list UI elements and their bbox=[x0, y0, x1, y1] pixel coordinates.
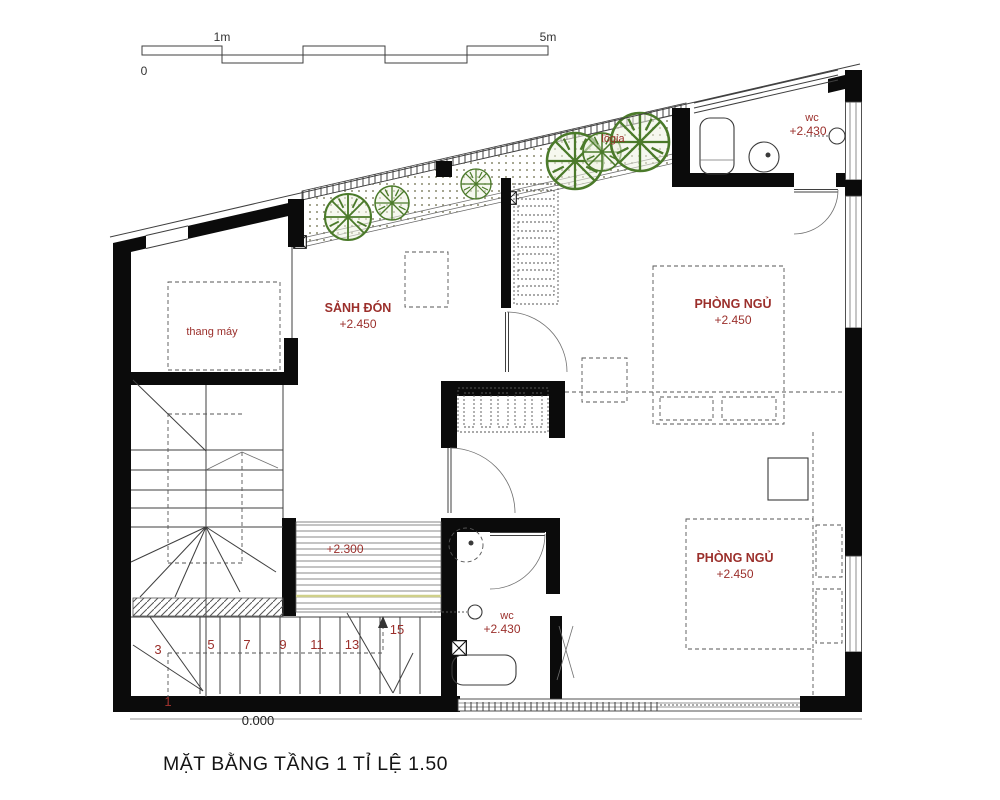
scale-1m-label: 1m bbox=[214, 30, 231, 44]
wall-junction bbox=[288, 199, 304, 247]
loggia-label: lôgia bbox=[601, 133, 625, 145]
deck-area bbox=[296, 522, 441, 612]
sink-symbol bbox=[749, 142, 779, 172]
stair-number: 1 bbox=[164, 694, 171, 709]
door-wc-mid bbox=[490, 533, 545, 590]
window bbox=[846, 556, 862, 652]
pillow-symbol bbox=[816, 525, 842, 577]
window bbox=[846, 102, 862, 180]
floor-plan-drawing: SẢNH ĐÓN +2.450 PHÒNG NGỦ +2.450 PHÒNG N… bbox=[0, 0, 1000, 800]
scale-zero-label: 0 bbox=[141, 64, 148, 78]
toilet-symbol bbox=[700, 118, 734, 174]
stair-number: 15 bbox=[390, 622, 404, 637]
floor-drain-icon bbox=[452, 641, 467, 656]
pillow-symbol bbox=[660, 397, 713, 420]
stair-number: 9 bbox=[279, 637, 286, 652]
elevator-label: thang máy bbox=[186, 326, 238, 338]
hall-name-label: SẢNH ĐÓN bbox=[325, 300, 392, 315]
stair-number: 7 bbox=[243, 637, 250, 652]
hall-carpet bbox=[405, 252, 448, 307]
stair-number-labels: 1 3 5 7 9 11 13 15 bbox=[154, 622, 404, 709]
door-hall-stair bbox=[448, 448, 515, 513]
nightstand-symbol bbox=[582, 358, 627, 402]
winder-treads bbox=[131, 527, 276, 597]
stair-number: 13 bbox=[345, 637, 359, 652]
stair-number: 3 bbox=[154, 642, 161, 657]
wc-top-level-label: +2.430 bbox=[789, 124, 826, 138]
pillow-symbol bbox=[722, 397, 776, 420]
drain-dot bbox=[469, 541, 474, 546]
stair-number: 11 bbox=[310, 637, 324, 652]
stair-number: 5 bbox=[207, 637, 214, 652]
drawing-title: MẶT BẰNG TẦNG 1 TỈ LỆ 1.50 bbox=[163, 751, 448, 775]
hall-level-label: +2.450 bbox=[339, 317, 376, 331]
nightstand-symbol bbox=[768, 458, 808, 500]
threshold-band bbox=[462, 702, 660, 711]
light-symbol bbox=[829, 128, 845, 144]
ground-level-label: 0.000 bbox=[242, 713, 275, 728]
pillow-symbol bbox=[816, 589, 842, 643]
wc-mid-name-label: wc bbox=[499, 610, 514, 622]
drain-dot bbox=[766, 153, 771, 158]
scale-5m-label: 5m bbox=[540, 30, 557, 44]
bedroom2-name-label: PHÒNG NGỦ bbox=[696, 550, 773, 565]
door-hall-bedroom1 bbox=[506, 312, 568, 372]
door-arc bbox=[794, 190, 838, 234]
bedroom1-level-label: +2.450 bbox=[714, 313, 751, 327]
bed-symbol bbox=[653, 266, 784, 424]
door-arc bbox=[490, 534, 545, 589]
wardrobe-symbol bbox=[514, 184, 558, 304]
bed-symbol bbox=[686, 519, 813, 649]
bedroom2-level-label: +2.450 bbox=[716, 567, 753, 581]
bedroom1-name-label: PHÒNG NGỦ bbox=[694, 296, 771, 311]
stair-landing-hatch bbox=[133, 598, 283, 616]
scale-bar: 0 1m 5m bbox=[141, 30, 557, 78]
bathtub-symbol bbox=[452, 655, 516, 685]
outer-edge-line bbox=[110, 64, 860, 237]
tree-icon bbox=[375, 186, 409, 220]
tree-icon bbox=[461, 169, 491, 199]
tree-icon bbox=[325, 194, 371, 240]
deck-level-label: +2.300 bbox=[326, 542, 363, 556]
light-symbol bbox=[468, 605, 482, 619]
door-arc bbox=[450, 448, 515, 513]
door-arc bbox=[507, 312, 567, 372]
wc-mid-level-label: +2.430 bbox=[483, 622, 520, 636]
loggia-strip bbox=[294, 103, 689, 248]
wc-top-name-label: wc bbox=[804, 112, 819, 124]
window bbox=[846, 196, 862, 328]
floor-plan-page: SẢNH ĐÓN +2.450 PHÒNG NGỦ +2.450 PHÒNG N… bbox=[0, 0, 1000, 800]
door-wc-top bbox=[794, 190, 838, 235]
